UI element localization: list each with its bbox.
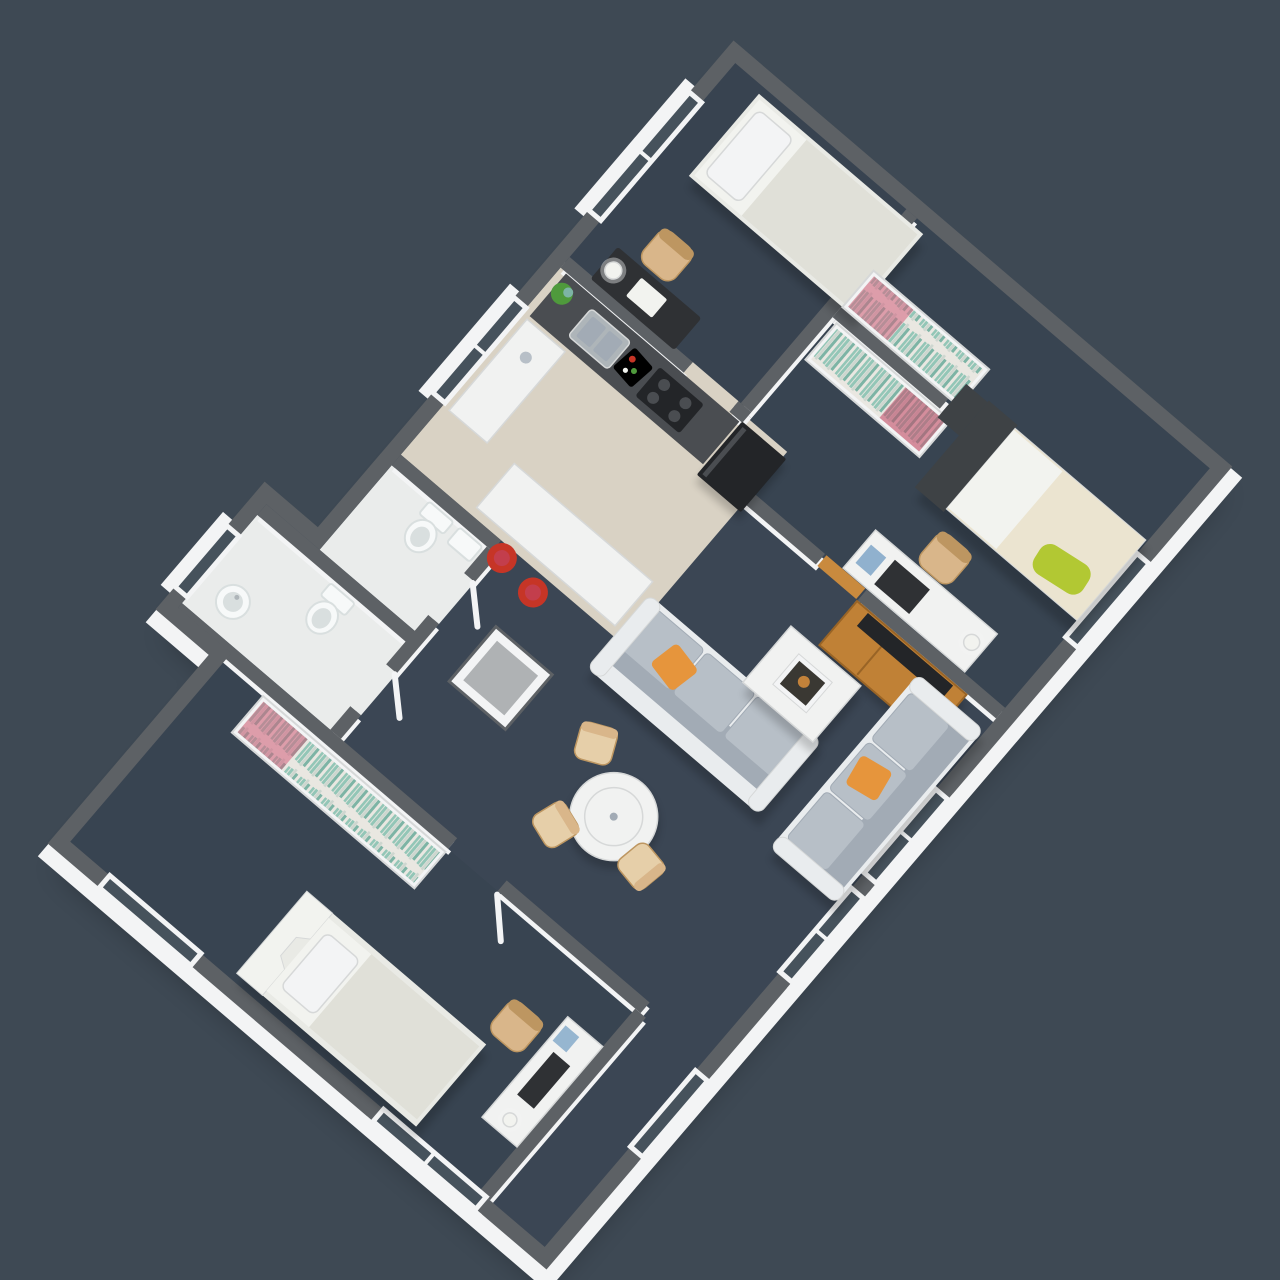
floor-plan-canvas	[0, 0, 1280, 1280]
floor-plan-stage	[0, 0, 1280, 1280]
